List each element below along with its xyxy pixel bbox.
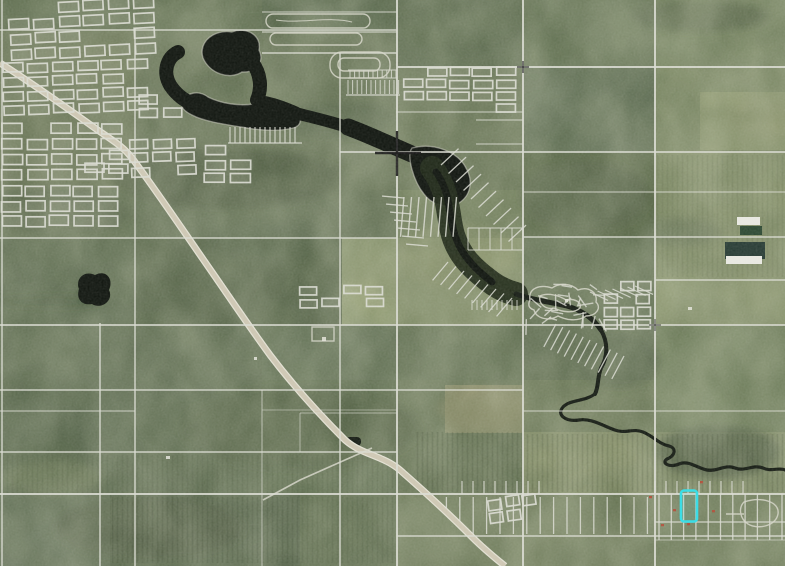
aerial-map-canvas[interactable] (0, 0, 785, 566)
map-viewport[interactable] (0, 0, 785, 566)
photo-grain-overlay (0, 0, 785, 566)
selected-parcel-highlight[interactable] (681, 491, 697, 522)
